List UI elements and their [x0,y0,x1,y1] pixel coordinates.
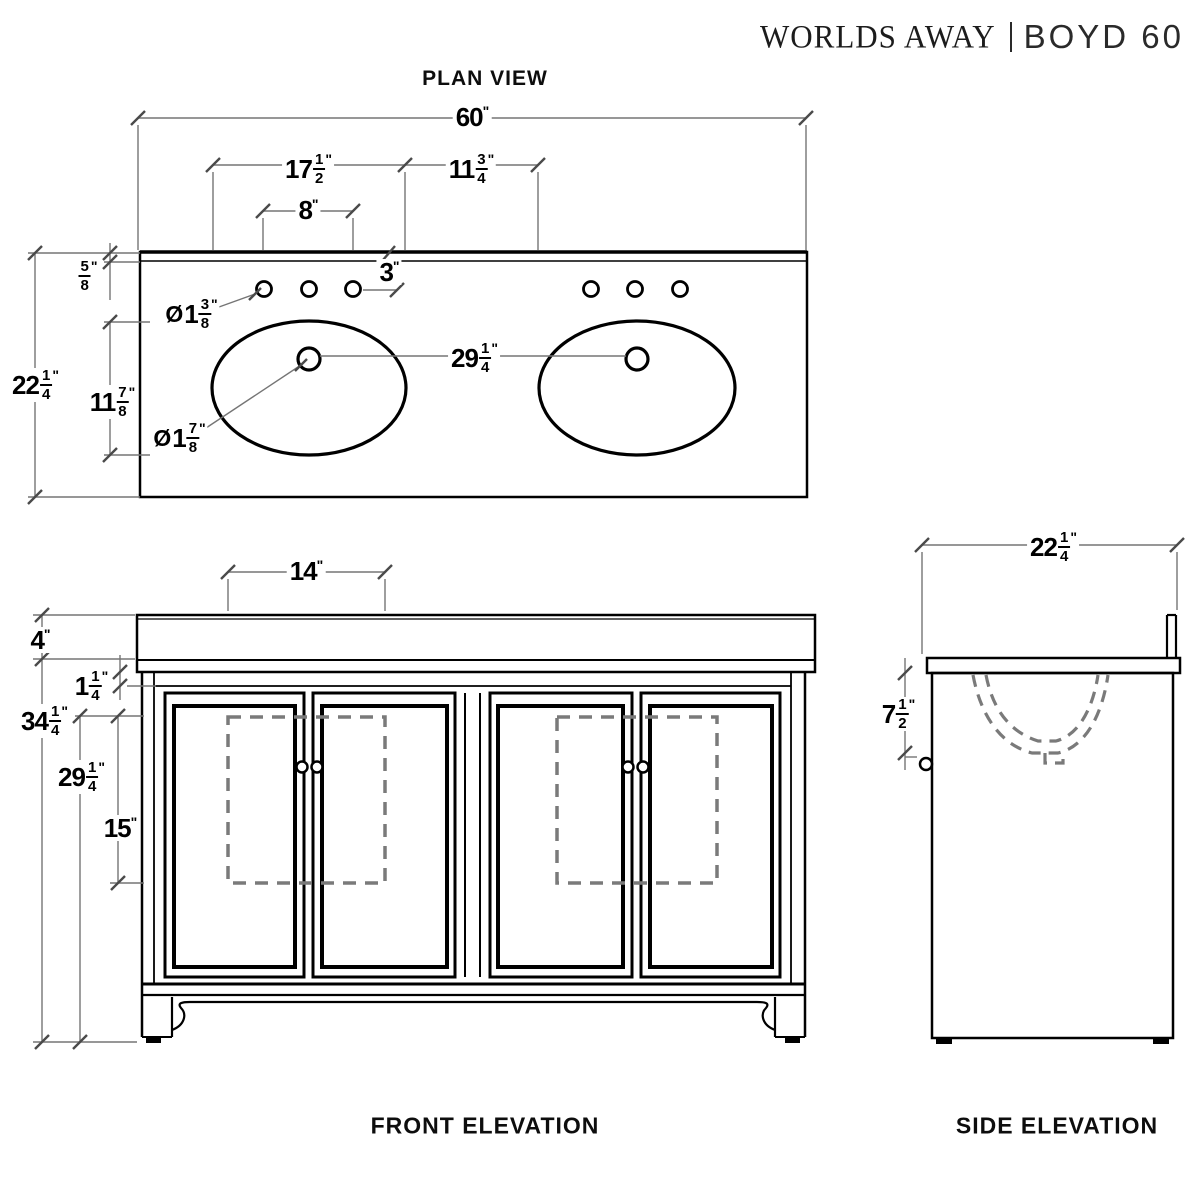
brand-separator-bar [1010,22,1012,52]
dim-front-opening-height: 2914" [55,760,107,794]
dim-plan-sink-gap: 1134" [446,152,496,186]
product-name: BOYD 60 [1024,18,1184,56]
front-dimension-lines [33,572,385,1042]
dim-front-top-rail-height: 114" [72,669,110,703]
front-hidden-openings [228,717,717,883]
side-elevation-drawing [920,615,1180,1044]
dim-plan-faucet-offset: 3" [376,259,401,285]
plan-view-title: PLAN VIEW [422,67,548,91]
dim-plan-faucet-hole-diameter: Ø138" [162,297,219,331]
brand-name: WORLDS AWAY [760,18,996,56]
drawing-canvas [0,0,1200,1200]
side-elevation-title: SIDE ELEVATION [956,1113,1158,1140]
dim-front-counter-height: 4" [27,627,52,653]
front-elevation-title: FRONT ELEVATION [371,1113,600,1140]
brand-header: WORLDS AWAY BOYD 60 [760,18,1184,56]
dim-side-overall-depth: 2214" [1027,530,1079,564]
dim-plan-faucet-spread: 8" [295,197,320,223]
dim-plan-sink-cutout-width: 1712" [282,152,334,186]
front-elevation-drawing [137,615,815,1043]
dim-plan-overall-width: 60" [453,104,492,130]
dim-side-bowl-depth: 712" [879,697,917,731]
dim-plan-sink-cutout-depth: 1178" [87,385,137,419]
side-hidden-sink-bowl [973,675,1108,763]
dim-plan-drain-hole-diameter: Ø178" [150,421,207,455]
dim-plan-counter-edge: 58" [75,259,100,293]
dim-plan-drain-spacing: 2914" [448,341,500,375]
spec-sheet: WORLDS AWAY BOYD 60 PLAN VIEW FRONT ELEV… [0,0,1200,1200]
side-dimension-ticks [898,538,1184,760]
plan-dimension-lines [28,118,806,497]
dim-front-cabinet-height: 3414" [18,704,70,738]
dim-plan-overall-depth: 2214" [9,368,61,402]
plan-dimension-ticks [28,111,813,504]
dim-front-panel-width: 14" [287,558,326,584]
dim-front-panel-height: 15" [101,815,140,841]
